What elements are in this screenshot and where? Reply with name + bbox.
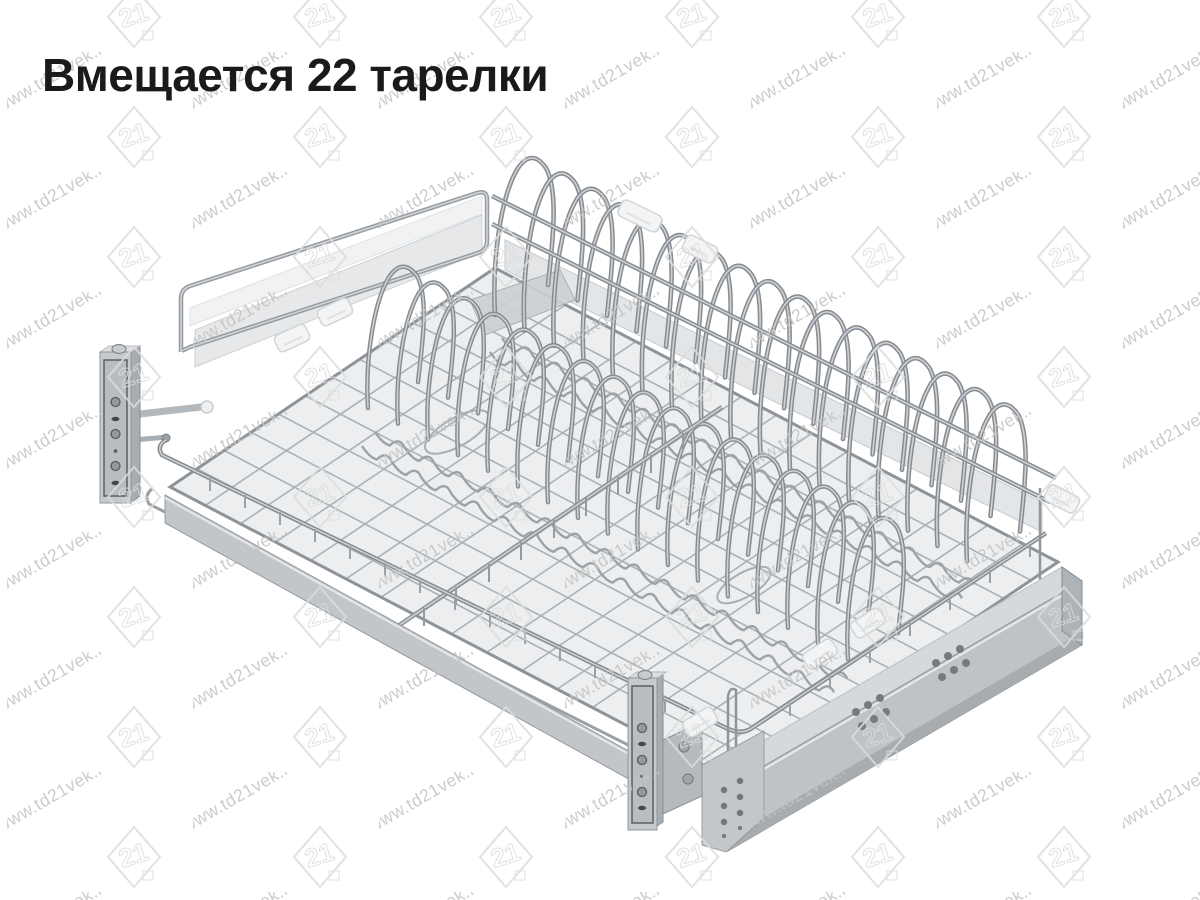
product-page: Вмещается 22 тарелки xyxy=(0,0,1200,900)
product-illustration: www.td21vek.ru 21 xyxy=(0,0,1200,900)
page-title: Вмещается 22 тарелки xyxy=(42,48,548,102)
watermark-layer xyxy=(0,0,1200,900)
